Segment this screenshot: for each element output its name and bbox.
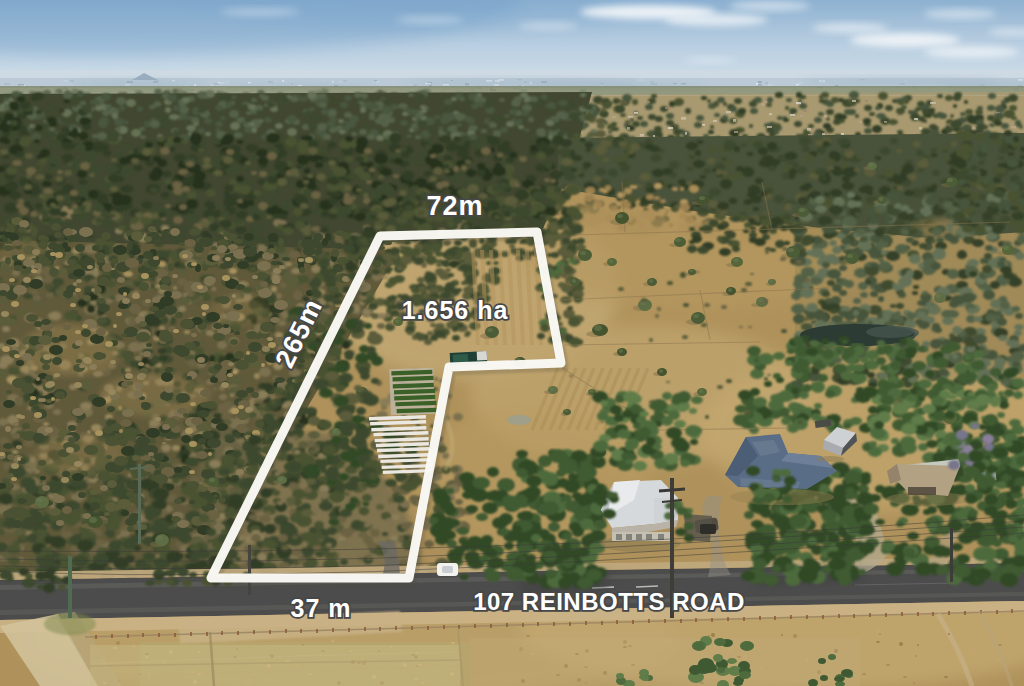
svg-text:1.656 ha: 1.656 ha — [402, 296, 509, 324]
svg-text:107 REINBOTTS ROAD: 107 REINBOTTS ROAD — [473, 588, 745, 615]
svg-text:72m: 72m — [426, 191, 483, 221]
svg-text:37 m: 37 m — [291, 594, 352, 622]
